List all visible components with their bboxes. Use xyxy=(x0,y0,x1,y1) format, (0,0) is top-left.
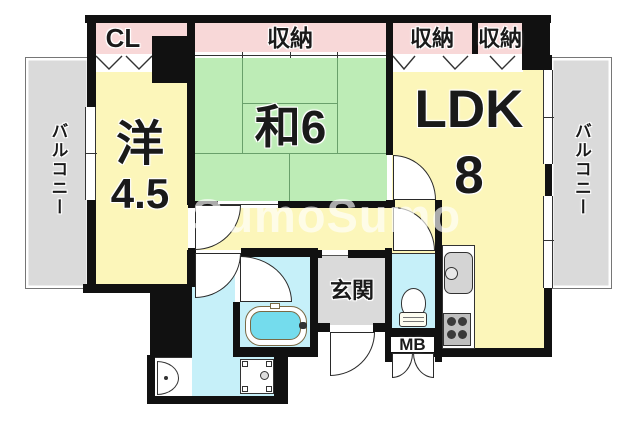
pan-corner xyxy=(266,361,272,367)
balcony-left-label: バルコニー xyxy=(49,122,67,217)
tank-line xyxy=(403,321,424,322)
burner-icon xyxy=(447,330,456,339)
zigzag-icon xyxy=(392,55,523,72)
cl-label: CL xyxy=(93,25,153,52)
burner-icon xyxy=(458,330,467,339)
western-room-size: 4.5 xyxy=(96,172,184,216)
balcony-right: バルコニー xyxy=(550,57,612,289)
wall xyxy=(87,200,96,290)
pan-corner xyxy=(242,386,248,392)
tank-line xyxy=(403,317,424,318)
tatami-line xyxy=(194,153,387,154)
door-meter-box-left xyxy=(392,353,413,378)
wall xyxy=(313,323,330,332)
balcony-right-label: バルコニー xyxy=(572,122,590,217)
faucet-icon xyxy=(445,267,458,280)
burner-icon xyxy=(458,317,467,326)
bathtub-water xyxy=(250,311,301,340)
window xyxy=(85,107,96,200)
floor-plan: バルコニー バルコニー xyxy=(0,0,640,422)
track-tick xyxy=(337,52,338,58)
wall xyxy=(545,162,552,198)
folding-door-ldk xyxy=(392,55,523,72)
track-tick xyxy=(290,52,291,58)
wall xyxy=(274,355,288,404)
wall xyxy=(425,348,552,357)
washing-machine-pan xyxy=(240,359,274,394)
burner-icon xyxy=(447,317,456,326)
wall xyxy=(150,284,192,357)
balcony-left: バルコニー xyxy=(25,57,90,289)
pan-corner xyxy=(266,386,272,392)
window xyxy=(543,196,553,288)
meter-box: MB xyxy=(390,336,435,353)
wall xyxy=(85,15,551,23)
drain-icon xyxy=(164,376,168,380)
ldk-label: LDK xyxy=(392,82,546,138)
storage-label-3: 収納 xyxy=(477,27,523,50)
wall xyxy=(241,248,313,257)
wall xyxy=(310,248,318,357)
storage-label-2: 収納 xyxy=(392,27,472,50)
window-tick xyxy=(544,240,554,241)
bath-faucet-icon xyxy=(299,322,307,329)
wall xyxy=(435,336,442,362)
wall xyxy=(348,250,390,258)
track-tick xyxy=(242,52,243,58)
stove xyxy=(443,313,471,346)
wall xyxy=(233,302,240,349)
zigzag-icon xyxy=(95,55,153,72)
wall xyxy=(373,323,390,332)
wall xyxy=(152,36,190,83)
folding-door-cl xyxy=(95,55,153,72)
western-room-label: 洋 xyxy=(96,120,184,170)
wall xyxy=(83,284,153,293)
storage-label-1: 収納 xyxy=(194,26,386,50)
meter-box-label: MB xyxy=(391,336,434,354)
pan-corner xyxy=(242,361,248,367)
sliding-door-track xyxy=(194,52,386,58)
toilet-tank xyxy=(399,312,427,327)
wall xyxy=(544,287,552,357)
bathtub-notch xyxy=(270,303,280,309)
japanese-room-label: 和6 xyxy=(194,103,387,151)
entrance-label: 玄関 xyxy=(318,279,386,302)
watermark: SumoSumo xyxy=(192,188,461,243)
bathtub xyxy=(245,306,307,346)
drain-icon xyxy=(260,371,269,380)
door-entrance xyxy=(330,332,375,376)
wall xyxy=(147,396,288,404)
door-meter-box-right xyxy=(413,353,434,378)
